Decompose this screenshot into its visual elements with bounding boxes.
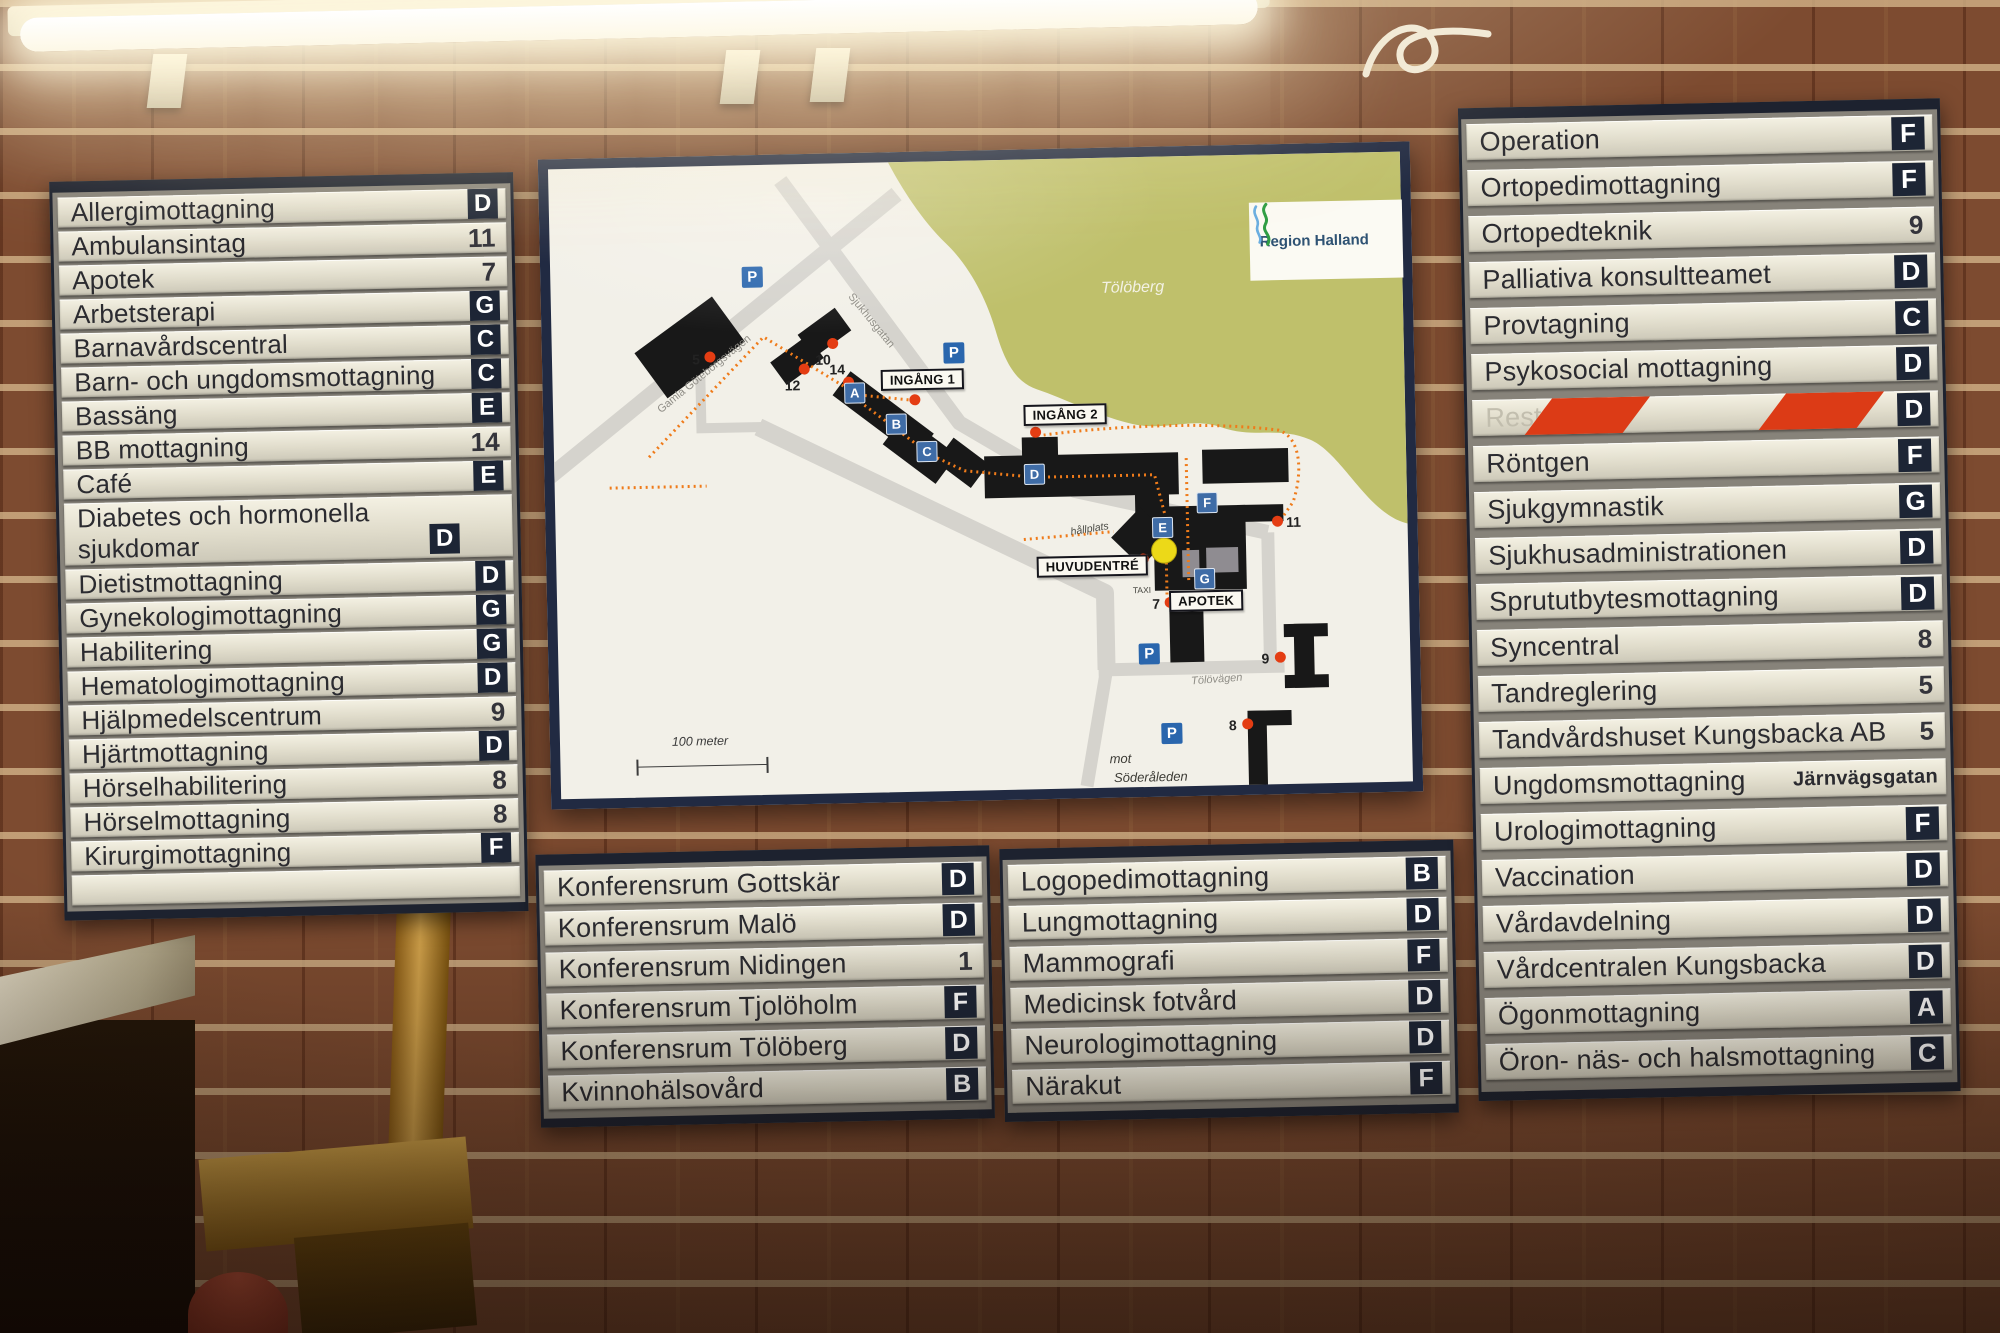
parking-icon: P [943,342,964,363]
map-road-label: Söderåleden [1114,769,1188,786]
directory-row: MammografiF [1009,938,1448,981]
directory-entry-label: Sjukhusadministrationen [1488,534,1900,570]
location-badge: D [467,188,498,219]
directory-entry-label: Barn- och ungdomsmottagning [74,361,471,395]
map-letter-marker: E [1152,517,1173,538]
directory-row: LogopedimottagningB [1008,856,1447,899]
directory-row: Hörselhabilitering8 [70,764,519,803]
directory-row: Palliativa konsultteametD [1469,252,1936,298]
location-badge: F [1407,939,1440,972]
location-badge: 8 [1896,623,1936,655]
location-badge: 11 [459,222,499,253]
building-number-label: 11 [1286,514,1301,530]
scale-label: 100 meter [636,733,764,750]
location-badge: D [1900,530,1934,564]
site-map: Tölöberg Region Halland 100 meter Gamla … [548,152,1413,800]
location-badge: 8 [470,764,510,795]
directory-entry-label: Ambulansintag [71,225,459,259]
directory-entry-label: Dietistmottagning [78,563,475,597]
entrance-label: APOTEK [1169,589,1243,612]
directory-entry-label: Hjälpmedelscentrum [81,699,469,733]
building-number-label: 8 [1229,717,1237,733]
directory-rows-left: AllergimottagningDAmbulansintag11Apotek7… [57,188,520,905]
directory-row: RestaurangD [1472,390,1939,436]
directory-entry-label: BB mottagning [75,429,463,463]
directory-row: Konferensrum Nidingen1 [545,943,984,986]
map-letter-marker: F [1196,492,1217,513]
directory-entry-label: Vårdavdelning [1496,902,1908,938]
location-badge: B [1406,857,1439,890]
location-badge: F [1891,116,1925,150]
directory-row: RöntgenF [1473,436,1940,482]
location-badge: 9 [469,696,509,727]
location-badge: C [1895,300,1929,334]
location-badge: A [1909,990,1943,1024]
directory-panel-bottom-right: LogopedimottagningBLungmottagningDMammog… [999,840,1459,1122]
location-badge: D [1908,898,1942,932]
location-badge: E [472,392,503,423]
location-badge: B [946,1068,979,1101]
directory-entry-label: Barnavårdscentral [73,327,470,361]
lamp-bracket [810,48,851,102]
parking-icon: P [1139,643,1160,664]
directory-entry-label: Vårdcentralen Kungsbacka [1497,948,1909,984]
directory-row: AllergimottagningD [57,188,506,227]
directory-row: Öron- näs- och halsmottagningC [1485,1034,1952,1080]
directory-row: UngdomsmottagningJärnvägsgatan [1480,758,1947,804]
directory-row: Konferensrum TjolöholmF [546,984,985,1027]
location-badge: 14 [463,426,503,457]
directory-row: DietistmottagningD [65,560,514,599]
location-badge: D [1409,1021,1442,1054]
directory-row: BassängE [62,392,511,431]
location-badge: D [1896,346,1930,380]
directory-entry-label: Provtagning [1483,304,1895,340]
directory-entry-label: Konferensrum Tjolöholm [559,989,944,1024]
location-badge: 5 [1898,715,1938,747]
directory-entry-label: Närakut [1025,1065,1410,1100]
directory-entry-label: Konferensrum Gottskär [557,866,942,901]
entrance-label: HUVUDENTRÉ [1037,554,1149,577]
map-letter-marker: A [844,382,865,403]
directory-row: UrologimottagningF [1481,804,1948,850]
location-badge: D [429,523,460,554]
location-badge: D [942,904,975,937]
directory-entry-label: Hematologimottagning [80,665,477,699]
directory-row: NeurologimottagningD [1011,1020,1450,1063]
directory-entry-label: Konferensrum Tölöberg [560,1030,945,1065]
directory-panel-left: AllergimottagningDAmbulansintag11Apotek7… [49,172,528,921]
location-badge: F [481,832,512,863]
directory-row: Hjälpmedelscentrum9 [68,696,517,735]
location-badge: C [470,324,501,355]
directory-row: SjukgymnastikG [1474,482,1941,528]
location-badge: D [1897,392,1931,426]
directory-row: Hörselmottagning8 [70,798,519,837]
directory-row: HematologimottagningD [67,662,516,701]
directory-panel-bottom-left: Konferensrum GottskärDKonferensrum MalöD… [535,845,995,1127]
directory-row: BB mottagning14 [62,426,511,465]
directory-row: Tandreglering5 [1478,666,1945,712]
directory-row: BarnavårdscentralC [60,324,509,363]
directory-row: GynekologimottagningG [66,594,515,633]
directory-entry-label: Logopedimottagning [1021,860,1406,895]
site-map-panel: Tölöberg Region Halland 100 meter Gamla … [538,141,1423,809]
directory-row: Psykosocial mottagningD [1471,344,1938,390]
location-badge: D [1909,944,1943,978]
parking-icon: P [742,266,763,287]
directory-entry-label: Sjukgymnastik [1487,488,1899,524]
wayfinding-board: AllergimottagningDAmbulansintag11Apotek7… [0,0,2000,1333]
region-halland-logo-text: Region Halland [1259,231,1369,250]
building-number-label: 7 [1152,596,1160,612]
directory-row [72,866,521,905]
directory-row: NärakutF [1012,1061,1451,1104]
scale-bar [636,757,768,776]
map-letter-marker: C [916,441,937,462]
map-letter-marker: D [1024,464,1045,485]
location-badge: 1 [936,945,976,977]
directory-entry-label: Neurologimottagning [1024,1024,1409,1059]
location-badge: D [479,730,510,761]
location-badge: F [1906,806,1940,840]
building-number-label: 9 [1261,650,1269,666]
entrance-label: INGÅNG 2 [1023,403,1107,426]
map-road-label: TAXI [1133,585,1151,595]
hill-label: Tölöberg [1101,279,1165,298]
directory-entry-label: Hörselmottagning [83,801,471,835]
directory-entry-label: Syncentral [1490,626,1896,661]
directory-row: KirurgimottagningF [71,832,520,871]
directory-row: VaccinationD [1482,850,1949,896]
location-badge: F [1410,1062,1443,1095]
directory-entry-label: Lungmottagning [1022,901,1407,936]
location-badge: D [945,1027,978,1060]
directory-row: HabiliteringG [67,628,516,667]
directory-entry-label: Konferensrum Malö [558,907,943,942]
directory-row: KvinnohälsovårdB [548,1066,987,1109]
map-letter-marker: G [1194,568,1215,589]
directory-entry-label: Diabetes och hormonella sjukdomar [77,496,430,565]
directory-row: ÖgonmottagningA [1485,988,1952,1034]
directory-entry-label: Mammografi [1022,942,1407,977]
directory-row: Tandvårdshuset Kungsbacka AB5 [1479,712,1946,758]
location-badge: D [1406,898,1439,931]
directory-entry-label: Arbetsterapi [73,293,470,327]
directory-row: HjärtmottagningD [69,730,518,769]
directory-entry-label: Medicinsk fotvård [1023,983,1408,1018]
location-badge: G [476,594,507,625]
location-badge: G [470,290,501,321]
directory-entry-label: Urologimottagning [1494,810,1906,846]
directory-row: Barn- och ungdomsmottagningC [61,358,510,397]
location-badge: 5 [1897,669,1937,701]
directory-entry-label: Apotek [72,259,460,293]
location-badge: F [1898,438,1932,472]
directory-entry-label: Operation [1479,120,1891,156]
region-halland-logo: Region Halland [1249,200,1404,281]
location-badge: Järnvägsgatan [1793,765,1939,791]
directory-entry-label: Bassäng [75,395,472,429]
lamp-bracket [720,50,761,104]
directory-entry-label: Ortopedteknik [1481,212,1887,247]
power-cable [1362,12,1492,92]
directory-entry-label: Psykosocial mottagning [1484,350,1896,386]
location-badge: G [477,628,508,659]
directory-entry-label: Allergimottagning [71,191,468,225]
directory-row: Konferensrum GottskärD [544,861,983,904]
location-badge: C [1910,1036,1944,1070]
directory-row: SprututbytesmottagningD [1476,574,1943,620]
location-badge: 8 [471,798,511,829]
directory-entry-label: Hjärtmottagning [82,733,479,767]
building-number-label: 12 [785,377,801,393]
directory-row: Medicinsk fotvårdD [1010,979,1449,1022]
building-number-label: 14 [829,361,845,377]
location-badge: D [477,662,508,693]
directory-row: Vårdcentralen KungsbackaD [1484,942,1951,988]
location-badge: D [1907,852,1941,886]
directory-row: CaféE [63,460,512,499]
location-badge: F [1892,162,1926,196]
directory-row: VårdavdelningD [1483,896,1950,942]
directory-entry-label: Tandreglering [1491,672,1897,707]
directory-entry-label: Palliativa konsultteamet [1482,258,1894,294]
directory-entry-label: Sprututbytesmottagning [1489,580,1901,616]
directory-row: SjukhusadministrationenD [1475,528,1942,574]
directory-row: Diabetes och hormonella sjukdomarD [64,494,513,565]
entrance-label: INGÅNG 1 [881,368,965,391]
region-halland-logo-icon [1249,202,1276,247]
hospital-directory-board-photo: AllergimottagningDAmbulansintag11Apotek7… [0,0,2000,1333]
directory-entry-label: Hörselhabilitering [83,767,471,801]
directory-row: ProvtagningC [1470,298,1937,344]
location-badge: D [1901,576,1935,610]
location-badge: D [475,560,506,591]
map-road-label: mot [1109,751,1131,766]
directory-entry-label: Ungdomsmottagning [1493,766,1793,799]
location-badge: G [1899,484,1933,518]
directory-entry-label: Öron- näs- och halsmottagning [1499,1040,1911,1076]
directory-rows-bottom-right: LogopedimottagningBLungmottagningDMammog… [1008,856,1451,1104]
directory-entry-label: Habilitering [80,631,477,665]
location-badge: D [1408,980,1441,1013]
directory-entry-label: Tandvårdshuset Kungsbacka AB [1492,718,1898,753]
building-number-label: 5 [692,351,700,367]
directory-entry-label: Café [76,463,473,497]
location-badge: D [1894,254,1928,288]
directory-row: Ambulansintag11 [58,222,507,261]
location-badge: D [942,863,975,896]
directory-row: OrtopedimottagningF [1467,160,1934,206]
directory-row: Konferensrum TölöbergD [547,1025,986,1068]
parking-icon: P [1161,723,1182,744]
directory-row: OperationF [1466,114,1933,160]
directory-entry-label: Konferensrum Nidingen [558,948,936,983]
directory-row: LungmottagningD [1009,897,1448,940]
location-badge: 7 [460,256,500,287]
directory-entry-label: Kvinnohälsovård [561,1071,946,1106]
location-badge: 9 [1887,209,1927,241]
directory-row: Apotek7 [59,256,508,295]
directory-panel-right: OperationFOrtopedimottagningFOrtopedtekn… [1458,98,1961,1101]
directory-rows-bottom-left: Konferensrum GottskärDKonferensrum MalöD… [544,861,987,1109]
directory-row: Syncentral8 [1477,620,1944,666]
map-letter-marker: B [886,413,907,434]
directory-entry-label: Gynekologimottagning [79,597,476,631]
directory-entry-label: Kirurgimottagning [84,835,481,869]
directory-entry-label: Röntgen [1486,442,1898,478]
directory-entry-label: Vaccination [1495,856,1907,892]
directory-entry-label: Ortopedimottagning [1480,166,1892,202]
location-badge: C [471,358,502,389]
directory-entry-label: Ögonmottagning [1498,994,1910,1030]
location-badge: E [473,460,504,491]
directory-rows-right: OperationFOrtopedimottagningFOrtopedtekn… [1466,114,1952,1080]
location-badge: F [944,986,977,1019]
directory-entry-label [85,881,512,890]
directory-row: Konferensrum MalöD [545,902,984,945]
directory-row: Ortopedteknik9 [1468,206,1935,252]
directory-row: ArbetsterapiG [60,290,509,329]
